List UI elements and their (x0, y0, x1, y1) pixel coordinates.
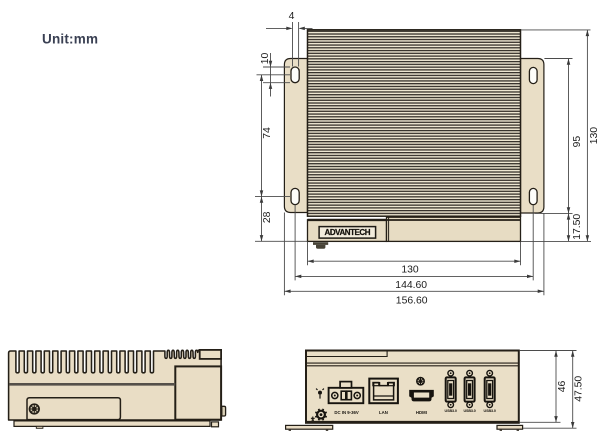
svg-text:10: 10 (260, 53, 271, 65)
svg-text:156.60: 156.60 (396, 295, 428, 306)
svg-text:17.50: 17.50 (572, 214, 583, 240)
svg-text:4: 4 (289, 11, 295, 22)
svg-text:LAN: LAN (379, 410, 388, 415)
svg-text:74: 74 (262, 127, 273, 139)
svg-text:95: 95 (572, 136, 583, 148)
svg-text:DC IN 9-36V: DC IN 9-36V (334, 410, 358, 415)
svg-text:USB3.0: USB3.0 (445, 409, 457, 413)
svg-text:HDMI: HDMI (416, 410, 427, 415)
svg-text:144.60: 144.60 (395, 280, 427, 291)
svg-text:46: 46 (557, 381, 568, 393)
svg-text:130: 130 (401, 265, 419, 276)
svg-text:Unit:mm: Unit:mm (42, 32, 98, 47)
svg-text:USB3.0: USB3.0 (484, 409, 496, 413)
svg-text:47.50: 47.50 (574, 376, 585, 402)
svg-text:ADVANTECH: ADVANTECH (325, 228, 371, 237)
svg-text:USB3.0: USB3.0 (463, 409, 475, 413)
svg-text:130: 130 (589, 127, 600, 145)
svg-text:28: 28 (262, 211, 273, 223)
